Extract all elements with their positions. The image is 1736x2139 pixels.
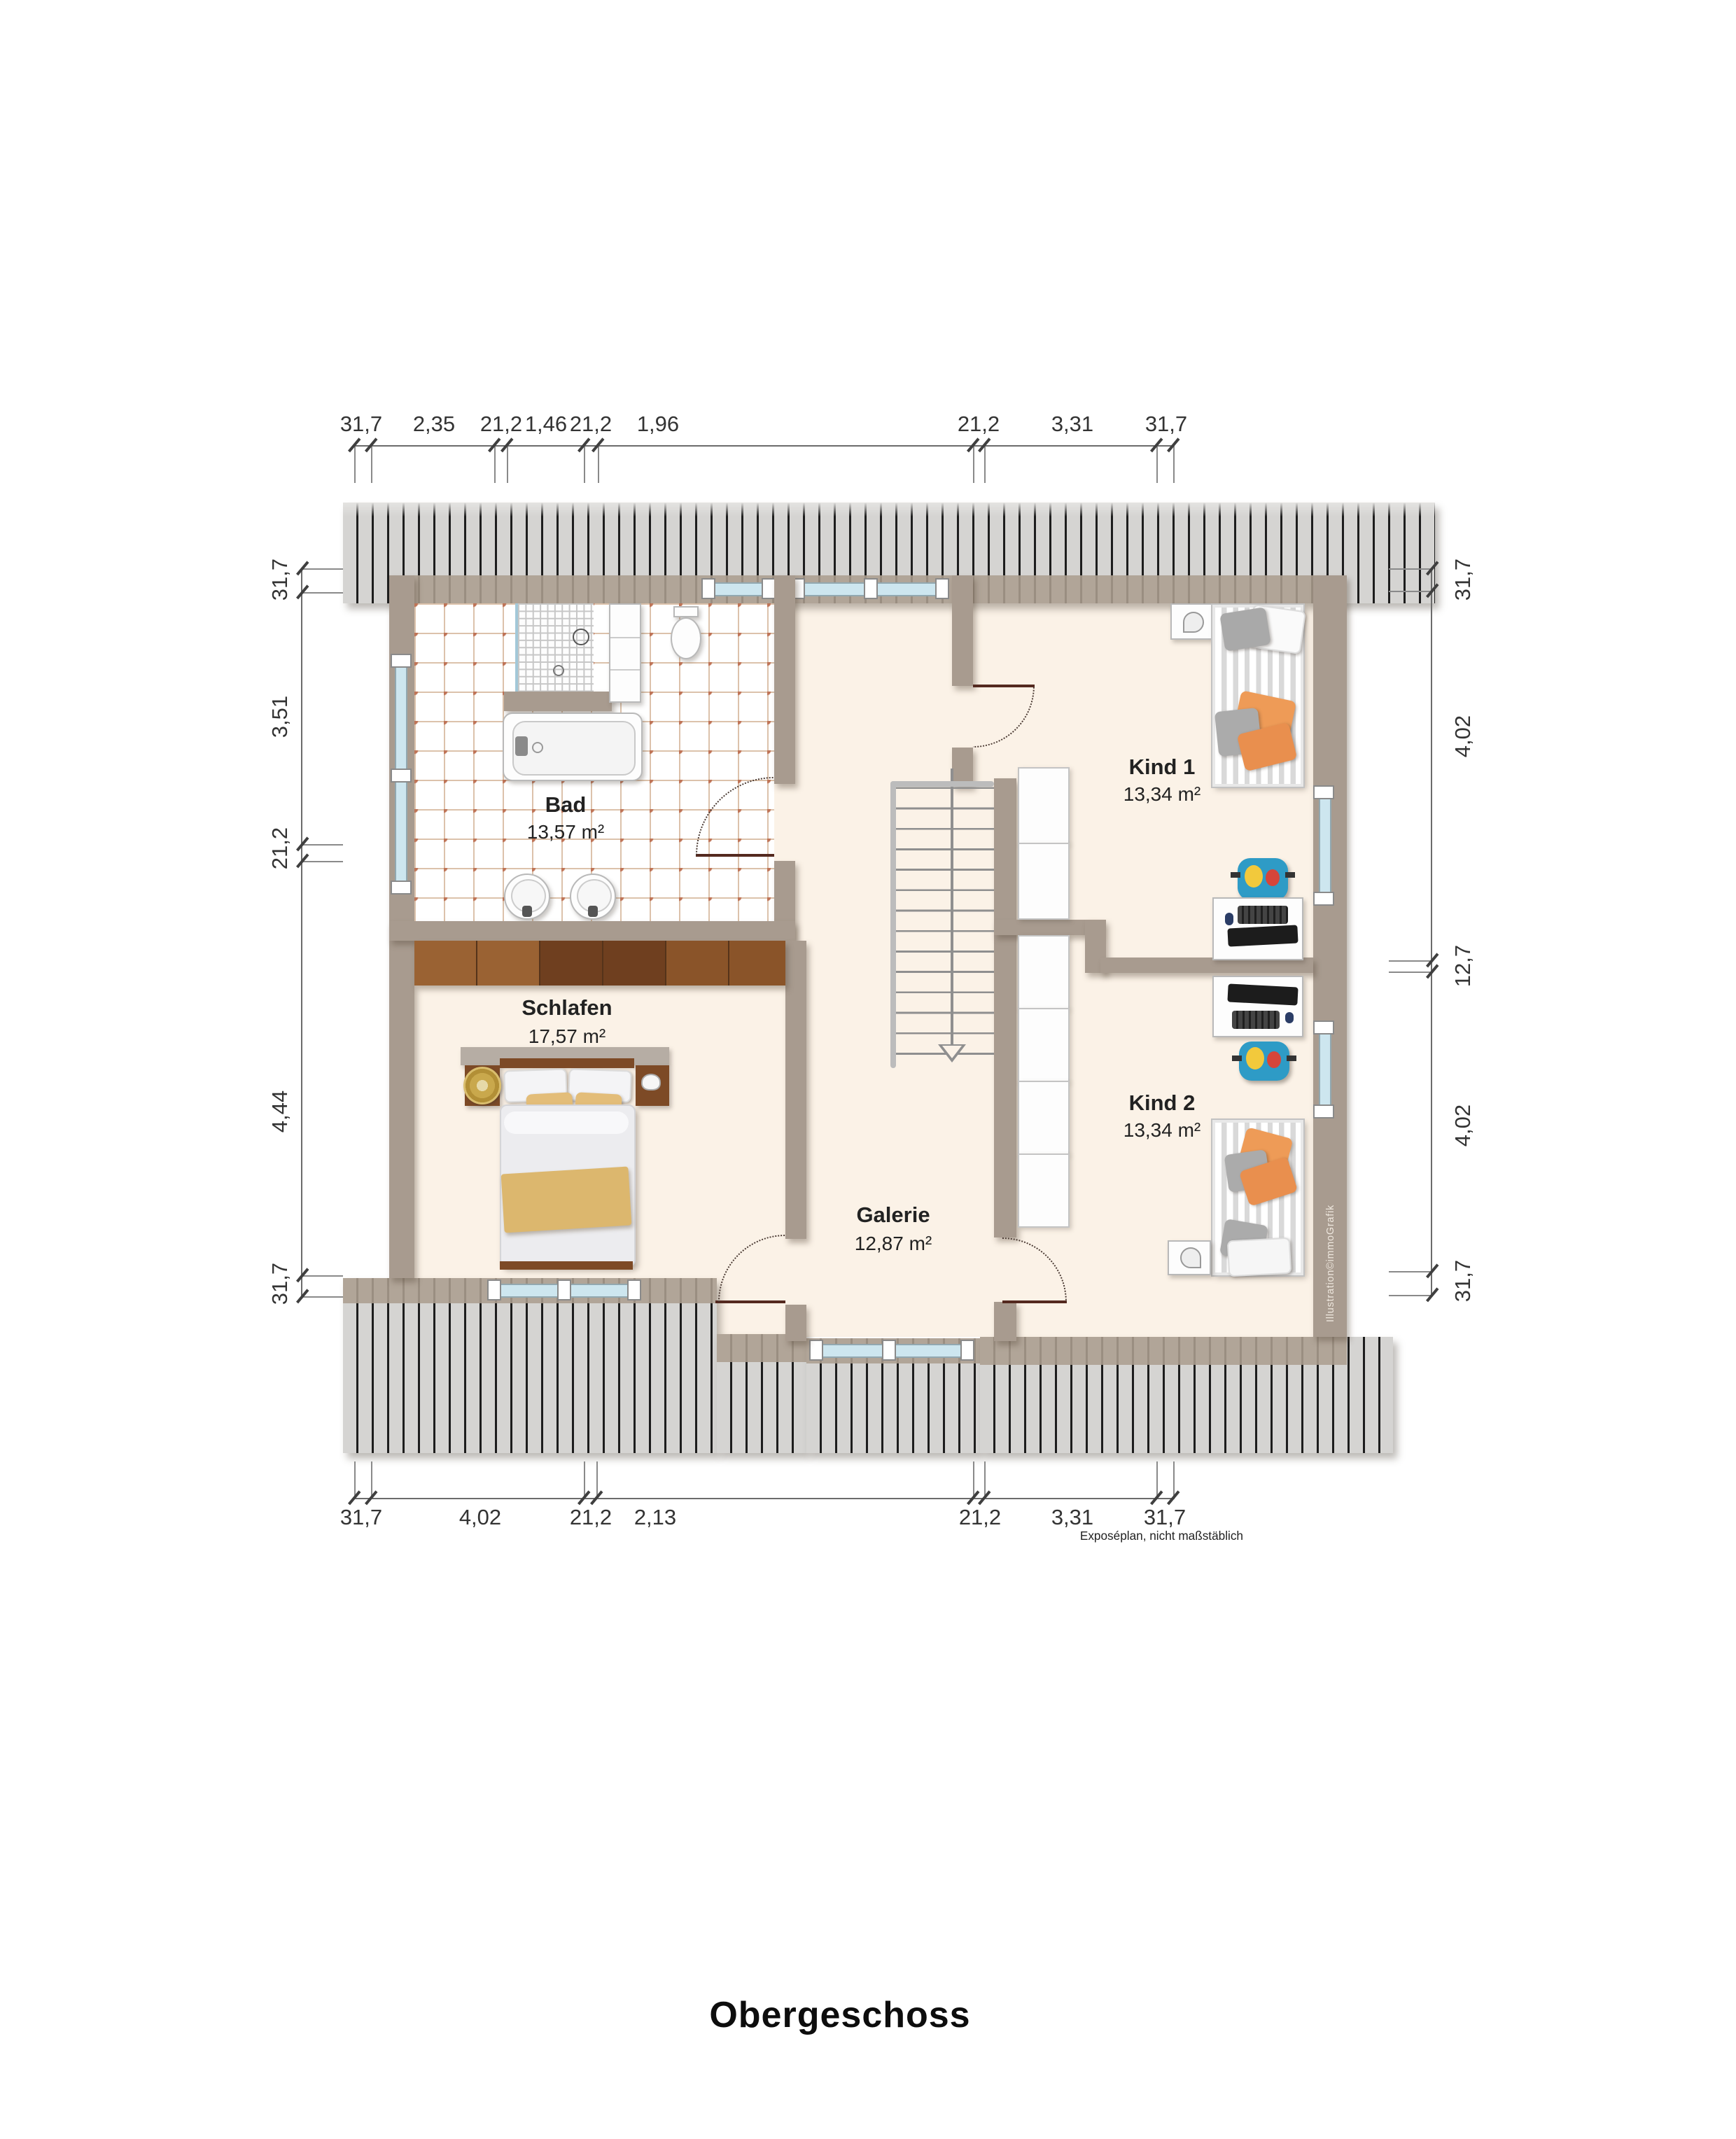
dim-label: 31,7 <box>269 1242 294 1326</box>
bad-door-arc-icon <box>696 777 774 855</box>
dim-label: 21,2 <box>937 413 1021 438</box>
dim-label: 3,31 <box>1030 413 1114 438</box>
closet <box>1018 935 1070 1009</box>
dim-label: 3,31 <box>1030 1506 1114 1531</box>
window-post <box>1313 785 1334 799</box>
dim-label: 3,51 <box>269 675 294 759</box>
double-bed-headboard <box>500 1058 634 1068</box>
dim-label: 12,7 <box>1452 924 1477 1008</box>
dim-label: 31,7 <box>319 1506 403 1531</box>
window-post <box>762 578 776 599</box>
nightstand-icon <box>1170 603 1212 640</box>
lamp-icon <box>641 1074 661 1090</box>
window-post <box>1313 1104 1334 1118</box>
wardrobe-icon <box>414 941 785 986</box>
kind1-door-arc-icon <box>973 686 1035 748</box>
mouse-icon <box>1225 913 1233 925</box>
keyboard-icon <box>1238 906 1288 924</box>
galerie-label: Galerie <box>809 1204 977 1229</box>
toilet-icon <box>671 617 701 659</box>
dim-label: 4,44 <box>269 1069 294 1153</box>
south-wall-kind2 <box>980 1337 1347 1365</box>
wall-bad-galerie-upper <box>774 575 795 784</box>
window-post <box>882 1340 896 1361</box>
monitor-icon <box>1227 925 1298 946</box>
sink-faucet-icon <box>522 906 532 917</box>
dim-label: 21,2 <box>938 1506 1022 1531</box>
disclaimer-text: Exposéplan, nicht maßstäblich <box>893 1529 1243 1543</box>
closet <box>1018 1008 1070 1082</box>
lamp-icon <box>1183 612 1204 633</box>
dim-chain-top <box>354 445 1175 447</box>
window-post <box>391 769 412 783</box>
wall-schlafen-galerie <box>785 941 806 1239</box>
dim-label: 31,7 <box>1452 1239 1477 1323</box>
dim-label: 31,7 <box>1123 1506 1207 1531</box>
shower-head-icon <box>573 629 589 645</box>
dim-chain-left <box>301 568 303 1296</box>
galerie-area-label: 12,87 m² <box>809 1232 977 1254</box>
bed-throw-icon <box>501 1167 632 1233</box>
roof-ridge-highlight <box>343 503 1435 517</box>
shower-drain-icon <box>553 665 564 676</box>
wall-galerie-kind1-stub <box>952 575 973 686</box>
schlafen-label: Schlafen <box>483 997 651 1022</box>
wall-stairwell <box>994 778 1016 1237</box>
wall-stairwell-stub <box>994 1302 1016 1341</box>
schlafen-area-label: 17,57 m² <box>483 1025 651 1047</box>
closet <box>1018 843 1070 920</box>
window-east-kind1 <box>1319 794 1331 897</box>
stairs-icon <box>896 769 994 1068</box>
dim-label: 2,13 <box>613 1506 697 1531</box>
wall-schlafen-galerie-stub <box>785 1305 806 1341</box>
stairs-handrail <box>890 781 994 787</box>
monitor-icon <box>1227 983 1298 1005</box>
window-post <box>1313 892 1334 906</box>
bathtub-icon <box>503 713 643 781</box>
dim-label: 31,7 <box>319 413 403 438</box>
closet <box>1018 1081 1070 1155</box>
bad-area-label: 13,57 m² <box>482 820 650 843</box>
floorplan-sheet: Illustration©immoGrafik <box>0 0 1736 2139</box>
window-post <box>809 1340 823 1361</box>
keyboard-icon <box>1232 1011 1280 1029</box>
schlafen-door-arc-icon <box>718 1235 785 1302</box>
office-chair-icon <box>1239 1042 1289 1081</box>
closet <box>1018 1153 1070 1228</box>
stairs-center-line <box>951 769 953 1049</box>
bathtub-faucet-icon <box>515 736 528 756</box>
illustrator-credit: Illustration©immoGrafik <box>1324 1165 1336 1361</box>
closet <box>1018 767 1070 844</box>
dim-label: 31,7 <box>269 538 294 622</box>
bath-cabinet <box>609 603 641 703</box>
sink-icon <box>504 874 550 920</box>
window-post <box>627 1279 641 1300</box>
nightstand-icon <box>1168 1240 1211 1275</box>
mouse-icon <box>1285 1012 1294 1023</box>
stairs-handrail <box>890 781 896 1068</box>
dim-label: 31,7 <box>1452 538 1477 622</box>
shower-wall <box>504 692 612 711</box>
kind2-label: Kind 2 <box>1078 1092 1246 1117</box>
toilet-tank-icon <box>673 606 699 617</box>
dim-label: 4,02 <box>438 1506 522 1531</box>
dim-label: 1,96 <box>616 413 700 438</box>
window-post <box>864 578 878 599</box>
window-post <box>701 578 715 599</box>
office-chair-icon <box>1238 858 1288 900</box>
lamp-icon <box>1180 1247 1201 1268</box>
window-post <box>487 1279 501 1300</box>
window-post <box>935 578 949 599</box>
roof-band-bottom-left <box>343 1278 717 1453</box>
floorplan-canvas: Illustration©immoGrafik <box>0 0 1736 2139</box>
window-east-kind2 <box>1319 1029 1331 1110</box>
sink-faucet-icon <box>588 906 598 917</box>
dim-label: 4,02 <box>1452 1083 1477 1167</box>
dim-label: 4,02 <box>1452 694 1477 778</box>
window-post <box>960 1340 974 1361</box>
shower-icon <box>515 603 594 692</box>
window-post <box>1313 1021 1334 1035</box>
window-post <box>391 654 412 668</box>
desk-icon <box>1212 897 1303 960</box>
sink-icon <box>570 874 616 920</box>
bad-label: Bad <box>482 794 650 819</box>
dim-chain-bottom <box>354 1498 1175 1500</box>
window-post <box>391 881 412 895</box>
pillow-icon <box>1227 1237 1292 1277</box>
pillow-icon <box>1219 607 1271 652</box>
desk-icon <box>1212 976 1303 1037</box>
wall-bad-schlafen <box>389 921 795 941</box>
dim-label: 21,2 <box>269 806 294 890</box>
dim-label: 31,7 <box>1124 413 1208 438</box>
kind2-door-arc-icon <box>1002 1237 1067 1302</box>
window-post <box>557 1279 571 1300</box>
page-title: Obergeschoss <box>0 1993 1680 2037</box>
round-rug-icon <box>463 1067 501 1104</box>
double-bed-footboard <box>500 1261 633 1270</box>
dim-chain-right <box>1431 568 1433 1295</box>
